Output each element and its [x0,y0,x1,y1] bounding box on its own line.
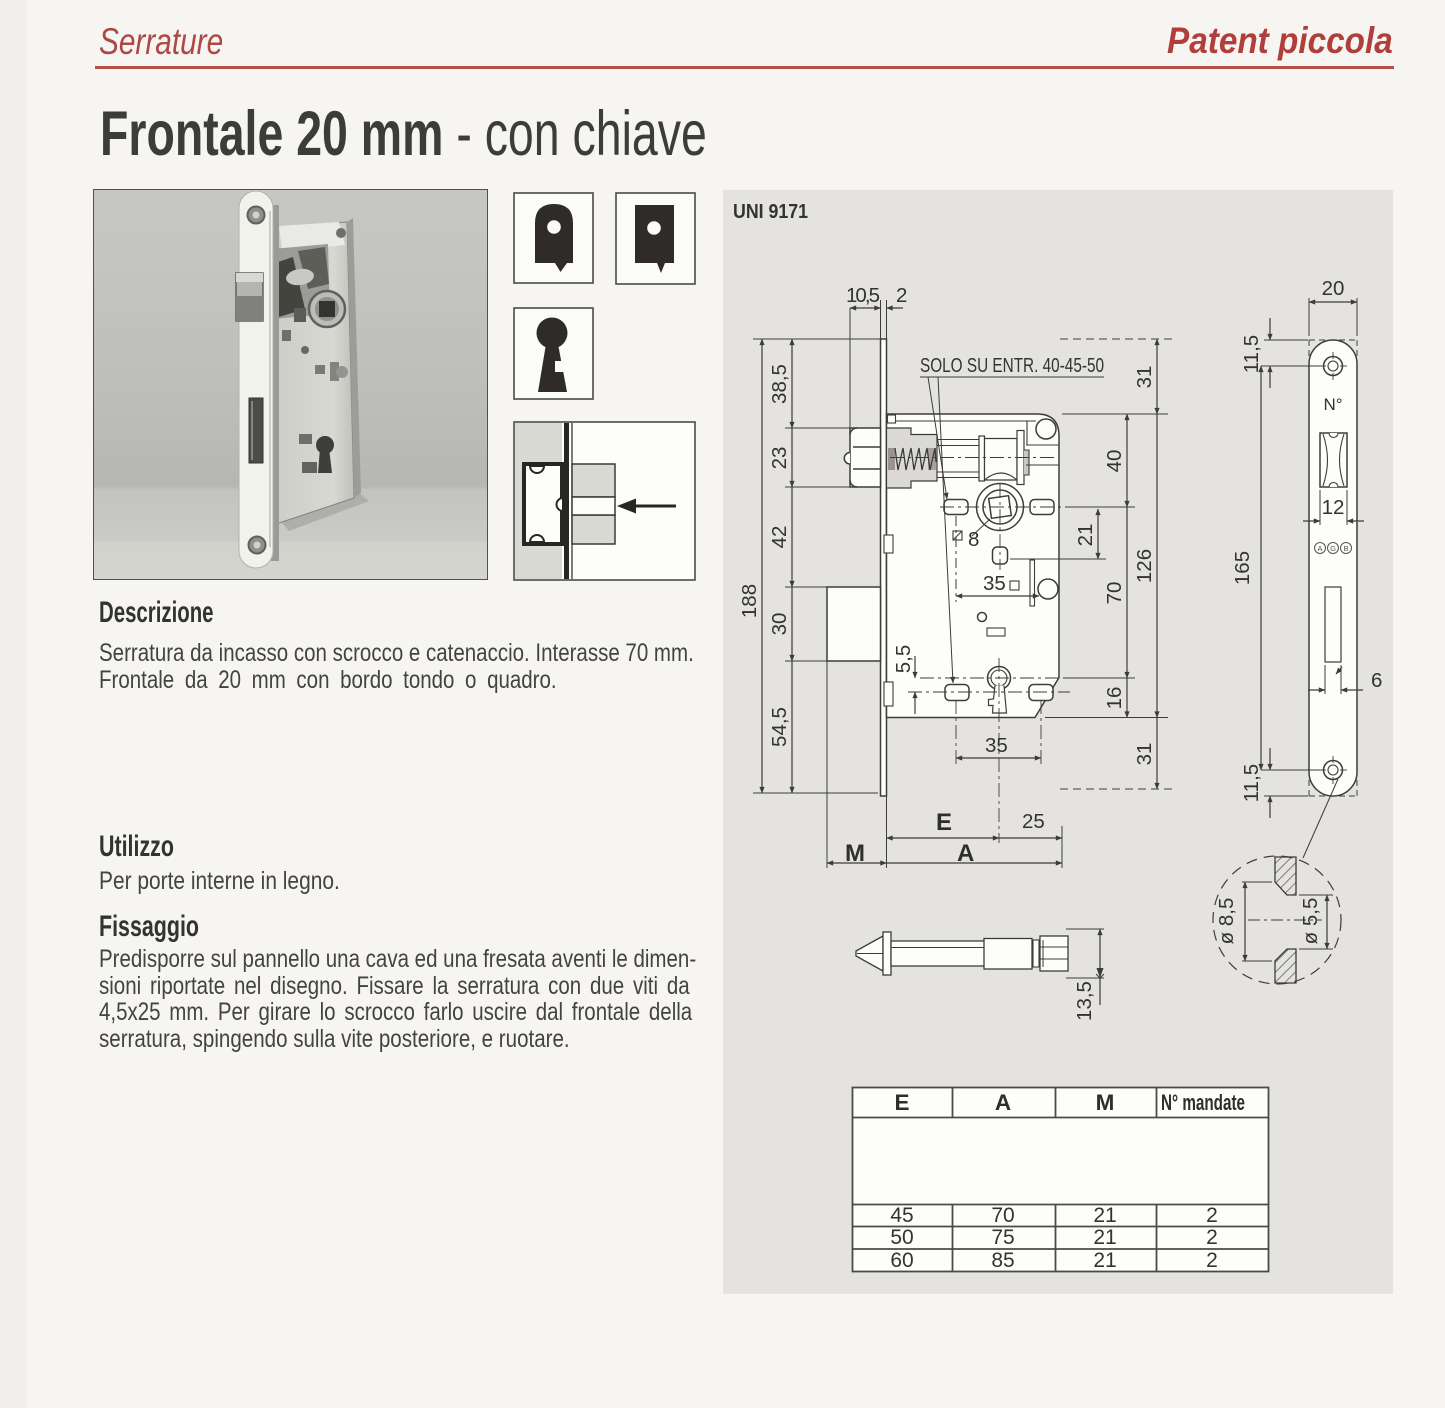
svg-text:30: 30 [768,613,791,636]
svg-text:25: 25 [1022,810,1045,833]
svg-text:10,5: 10,5 [846,284,880,307]
svg-text:B: B [1343,544,1348,553]
svg-text:5,5: 5,5 [892,645,915,674]
svg-text:2: 2 [1206,1226,1218,1249]
svg-text:16: 16 [1103,687,1126,710]
svg-text:42: 42 [768,526,791,549]
svg-text:60: 60 [890,1249,913,1272]
svg-text:38,5: 38,5 [768,364,791,404]
svg-text:M: M [1096,1090,1115,1115]
svg-text:20: 20 [1322,277,1345,300]
svg-text:A: A [957,840,974,867]
svg-text:SOLO SU ENTR. 40-45-50: SOLO SU ENTR. 40-45-50 [920,354,1104,377]
svg-text:45: 45 [890,1204,913,1227]
svg-text:70: 70 [991,1204,1014,1227]
svg-text:6: 6 [1371,669,1382,692]
svg-text:75: 75 [991,1226,1014,1249]
svg-text:21: 21 [1093,1226,1116,1249]
svg-text:M: M [845,840,865,867]
svg-text:2: 2 [1206,1204,1218,1227]
svg-text:G: G [1330,544,1336,553]
svg-text:126: 126 [1133,549,1156,583]
svg-text:21: 21 [1074,524,1097,547]
svg-text:12: 12 [1322,496,1345,519]
svg-text:UNI 9171: UNI 9171 [733,201,808,223]
svg-text:70: 70 [1103,582,1126,605]
svg-text:11,5: 11,5 [1240,335,1263,373]
svg-text:E: E [894,1090,909,1115]
svg-text:A: A [1317,544,1322,553]
svg-text:188: 188 [738,584,761,618]
svg-text:165: 165 [1231,551,1254,585]
svg-text:35: 35 [983,572,1006,595]
svg-text:2: 2 [1206,1249,1218,1272]
svg-text:11,5: 11,5 [1240,764,1263,802]
svg-text:40: 40 [1103,450,1126,473]
svg-text:85: 85 [991,1249,1014,1272]
svg-text:N°: N° [1323,395,1342,414]
svg-text:23: 23 [768,447,791,470]
svg-text:A: A [995,1090,1011,1115]
svg-text:21: 21 [1093,1204,1116,1227]
svg-text:ø 8,5: ø 8,5 [1215,898,1238,945]
svg-text:21: 21 [1093,1249,1116,1272]
svg-text:8: 8 [968,528,979,551]
svg-text:54,5: 54,5 [768,707,791,747]
svg-text:31: 31 [1133,366,1156,389]
svg-text:13,5: 13,5 [1073,981,1096,1021]
svg-text:N° mandate: N° mandate [1161,1090,1245,1115]
svg-text:35: 35 [985,734,1008,757]
svg-text:ø 5,5: ø 5,5 [1299,898,1322,945]
svg-text:2: 2 [896,284,907,307]
svg-text:50: 50 [890,1226,913,1249]
svg-text:31: 31 [1133,743,1156,766]
svg-text:E: E [936,809,952,836]
